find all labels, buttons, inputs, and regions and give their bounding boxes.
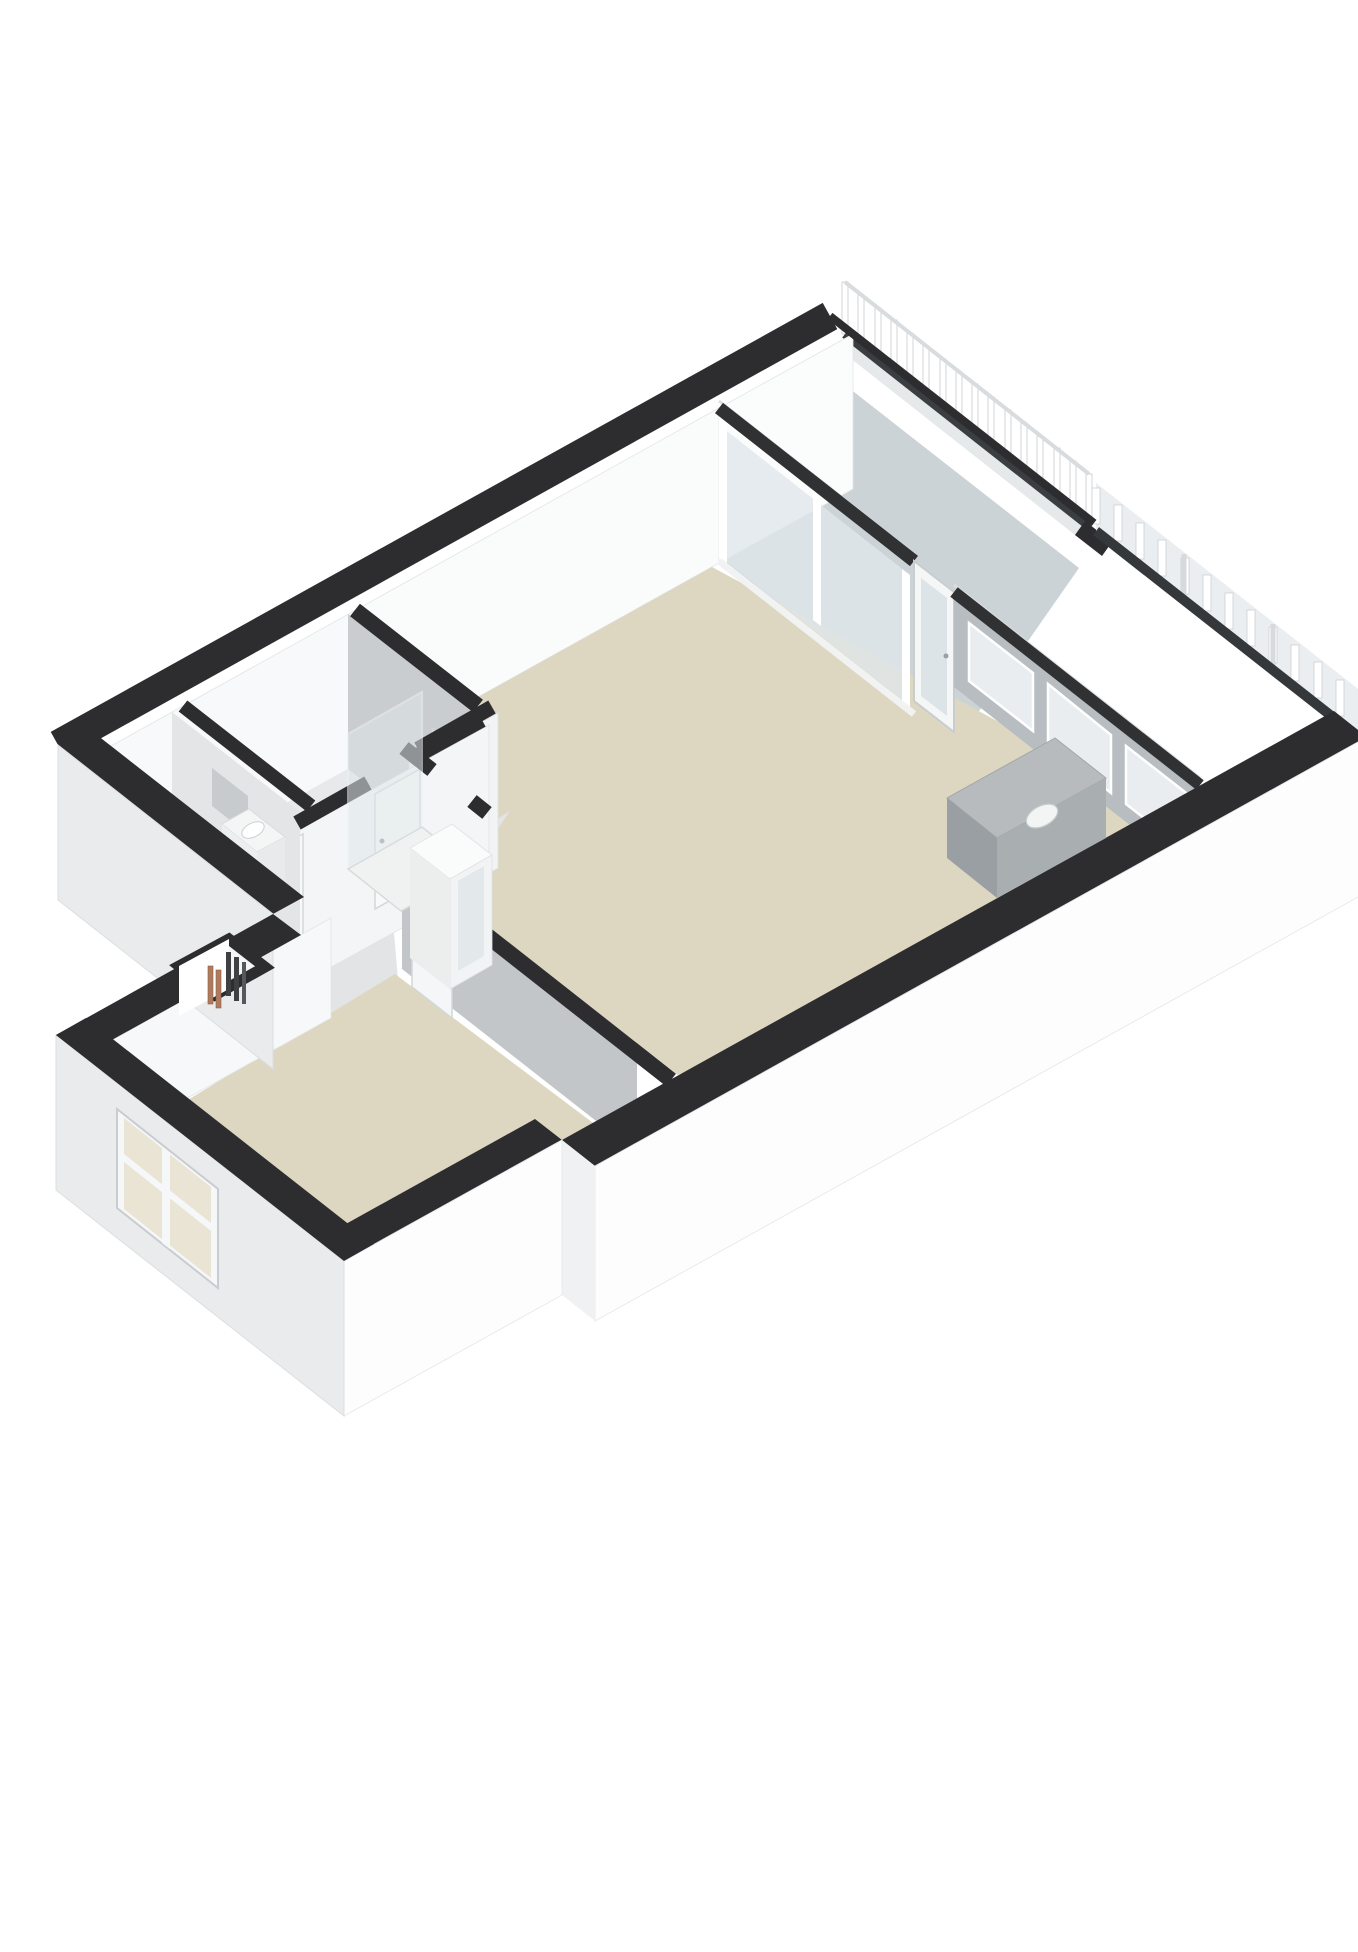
glazed-wall-mullion [813,485,821,626]
glazed-wall-frame-right [902,569,910,712]
blind-tab [1203,575,1211,611]
blind-tab [1225,593,1233,629]
blind-tab [1136,523,1144,559]
blinds-base-band [1096,531,1358,740]
floorplan-canvas [40,16,1358,1936]
balcony-door-handle [944,654,949,659]
blind-tab [1247,610,1255,646]
bedroom-window-mullion [162,1148,170,1249]
blind-tab [1114,505,1122,541]
blind-tab [1314,662,1322,698]
hall-closet-glass [458,866,484,971]
glazed-wall-frame-left [719,412,727,565]
blind-tab [1158,540,1166,576]
hall-partition-band [472,801,487,813]
blind-tab [1291,645,1299,681]
shaft-pipe-copper [216,970,221,1008]
shaft-pipe-copper [208,966,213,1004]
blind-tab [1336,680,1344,716]
balcony-door-glass [921,578,947,716]
se-step-face [562,1140,595,1321]
shaft-pipe-dark [226,952,231,996]
shaft-pipe-dark [234,957,239,1001]
floorplan-3d-render [40,16,1358,1936]
shaft-pipe-dark [242,962,246,1004]
